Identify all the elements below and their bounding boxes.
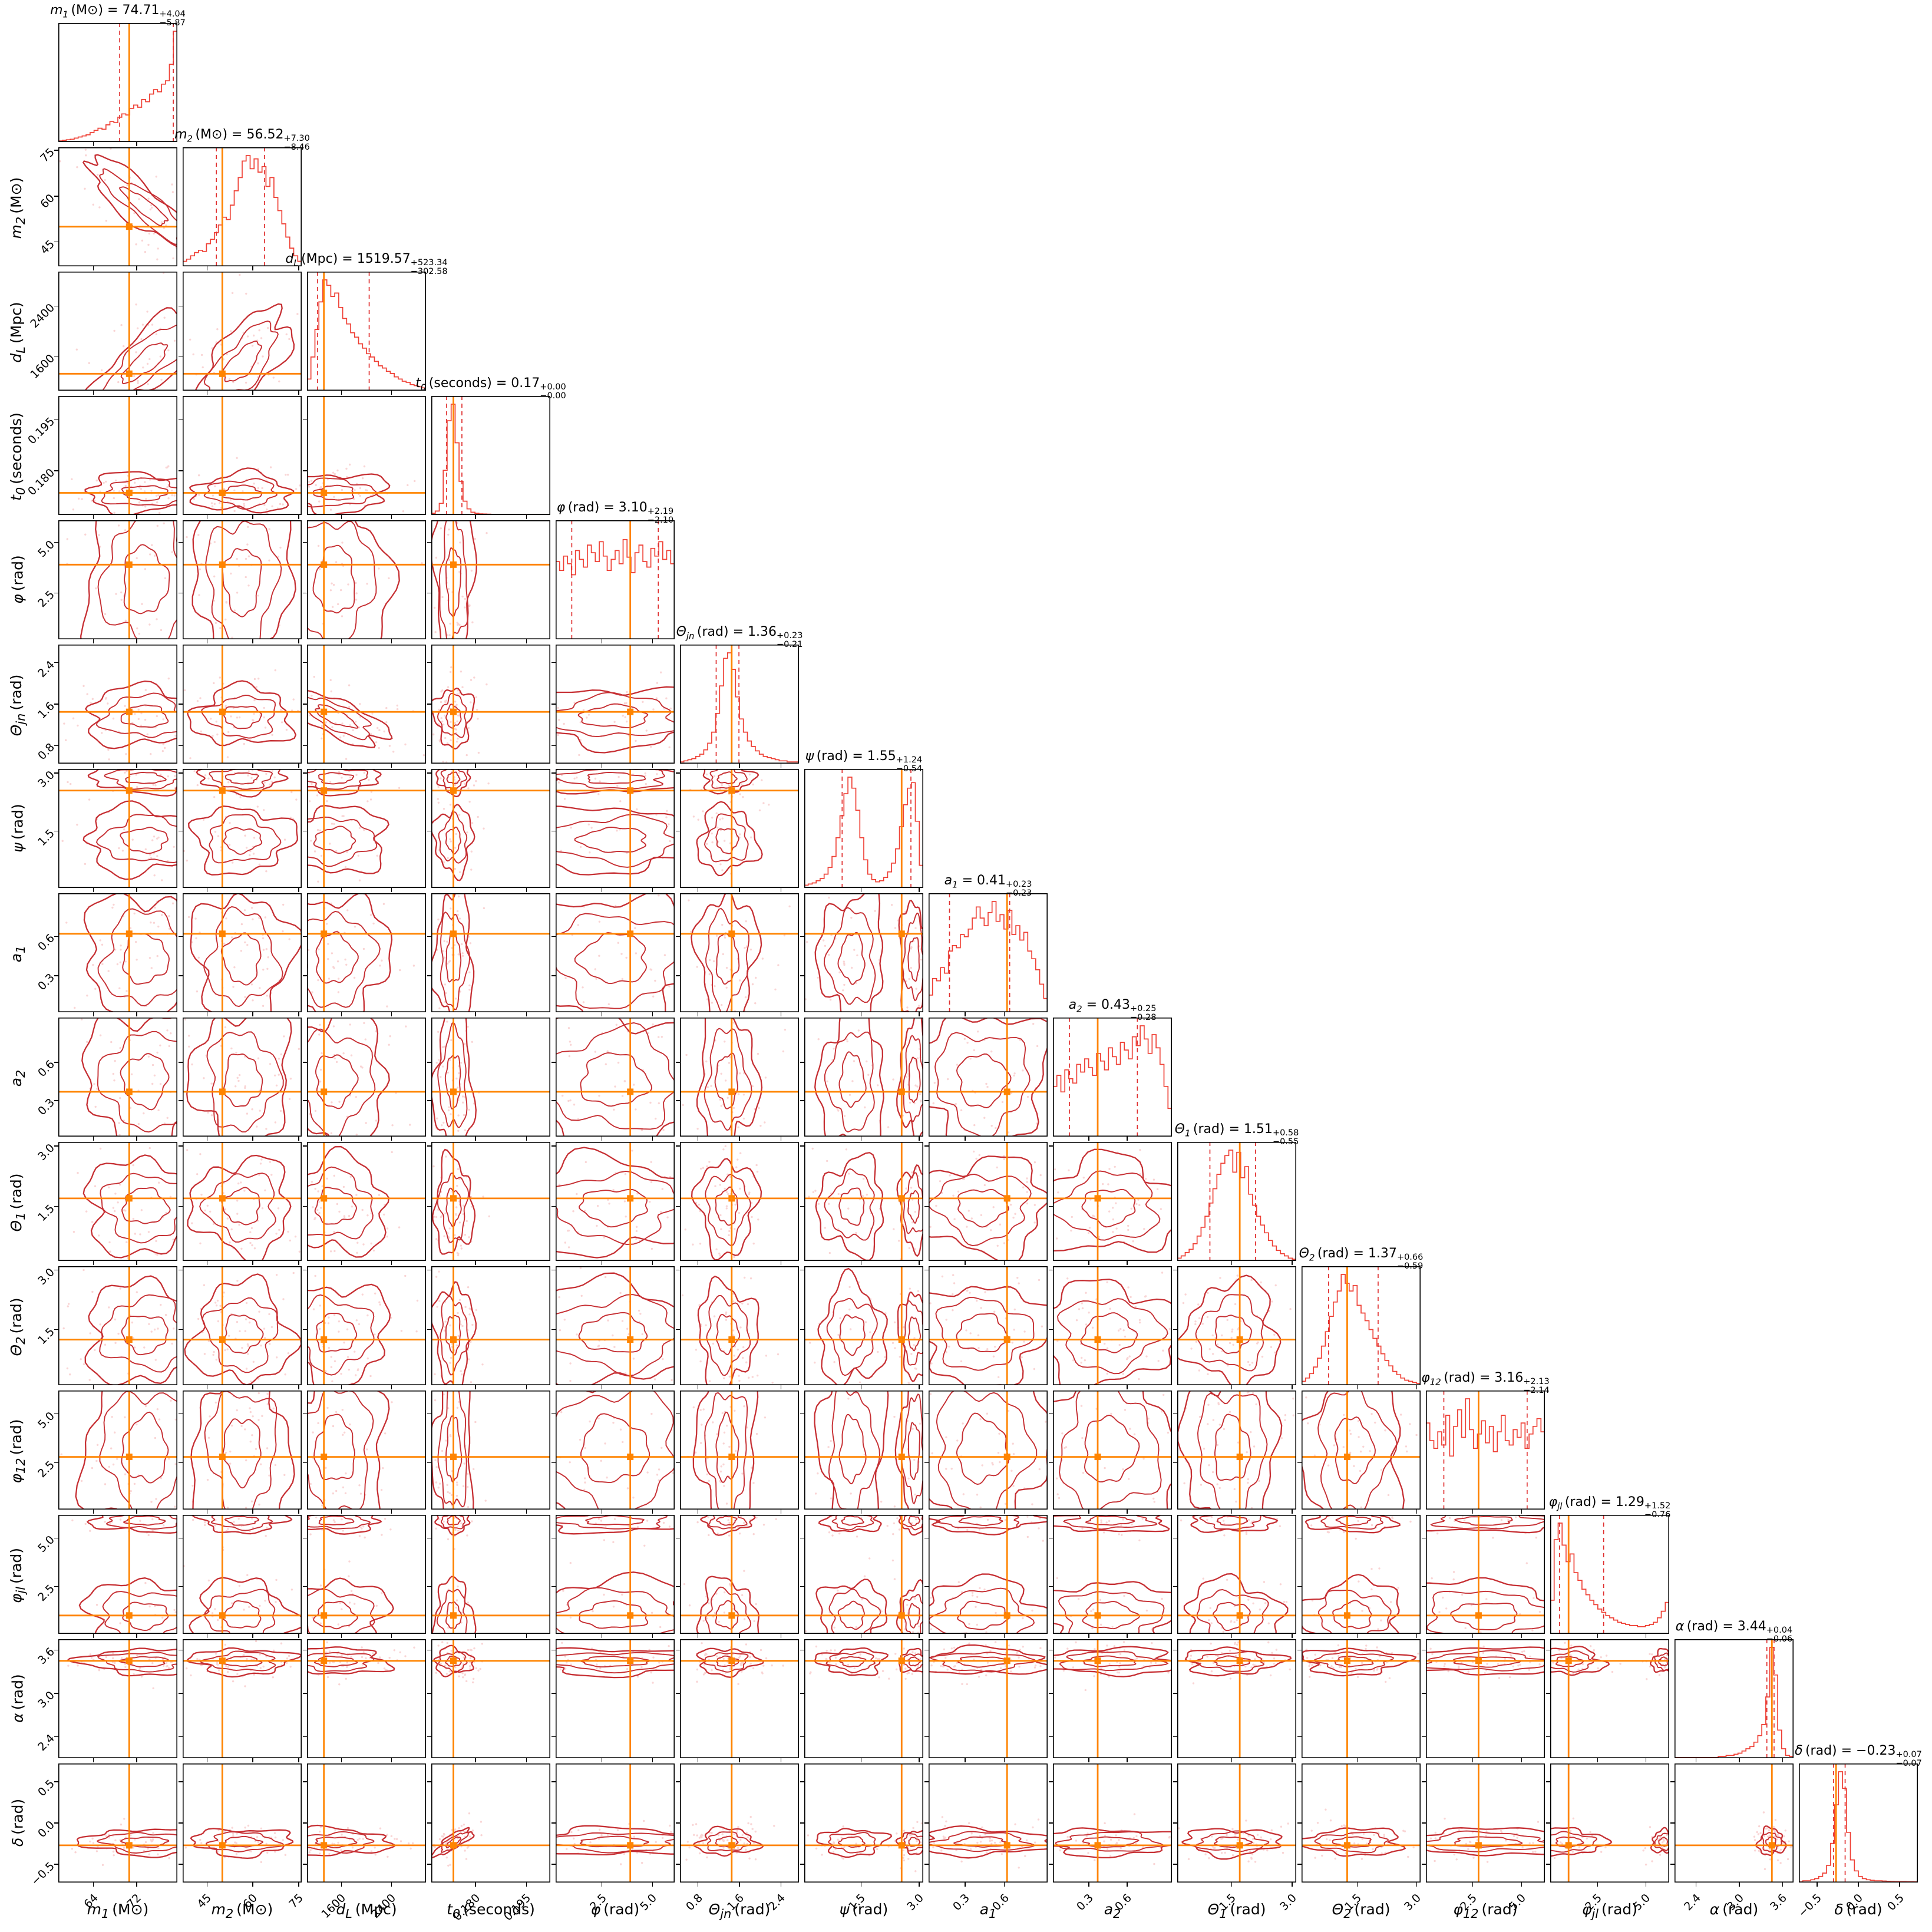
x-tick-mark <box>207 1137 208 1141</box>
y-tick-mark <box>551 772 556 774</box>
contour-panel-theta1-vs-t0 <box>431 1142 550 1261</box>
panel-background <box>804 1639 923 1758</box>
x-tick-mark <box>526 1510 527 1514</box>
contour-panel-theta_jn-vs-m1 <box>58 645 177 764</box>
y-tick-label: 2.5 <box>35 1458 57 1480</box>
y-tick-mark <box>54 831 58 832</box>
truth-marker <box>126 1454 133 1460</box>
y-tick-mark <box>676 1736 680 1738</box>
y-tick-mark <box>54 1736 58 1738</box>
y-tick-mark <box>427 745 431 747</box>
panel-background <box>680 1763 799 1883</box>
y-tick-mark <box>179 1822 183 1824</box>
hist-panel-dL <box>307 272 426 391</box>
panel-background <box>1053 1018 1172 1137</box>
truth-marker <box>219 1842 226 1848</box>
y-tick-mark <box>427 1650 431 1651</box>
panel-background <box>929 893 1048 1012</box>
panel-background <box>680 1018 799 1137</box>
y-tick-mark <box>54 1586 58 1587</box>
x-tick-mark <box>526 639 527 643</box>
panel-background <box>680 1142 799 1261</box>
contour-panel-phi_jl-vs-m1 <box>58 1515 177 1634</box>
truth-marker <box>1004 1336 1010 1343</box>
y-tick-mark <box>924 1206 929 1207</box>
y-tick-label: −0.5 <box>29 1860 57 1888</box>
y-tick-mark <box>427 1693 431 1694</box>
contour-panel-phi12-vs-psi <box>804 1391 923 1510</box>
contour-panel-phi12-vs-a2 <box>1053 1391 1172 1510</box>
contour-panel-delta-vs-phi12 <box>1426 1763 1545 1883</box>
y-tick-label: 75 <box>38 146 57 165</box>
x-tick-mark <box>298 1510 299 1514</box>
x-tick-mark <box>475 764 476 768</box>
x-tick-mark <box>207 1758 208 1762</box>
panel-background <box>1302 1266 1421 1385</box>
truth-marker <box>126 1842 133 1848</box>
y-axis-title-delta: δ (rad) <box>9 1735 27 1911</box>
x-tick-mark <box>1416 1758 1418 1762</box>
x-tick-mark <box>391 764 392 768</box>
y-tick-mark <box>303 1100 307 1101</box>
truth-marker <box>899 1336 905 1343</box>
x-tick-mark <box>526 888 527 892</box>
x-tick-mark <box>298 1261 299 1265</box>
truth-marker <box>728 1454 735 1460</box>
contour-panel-theta2-vs-a2 <box>1053 1266 1172 1385</box>
x-tick-mark <box>252 639 253 643</box>
y-tick-label: 2400 <box>28 302 57 331</box>
x-tick-mark <box>1292 1385 1293 1389</box>
x-tick-mark <box>919 1385 920 1389</box>
x-tick-mark <box>93 1634 94 1638</box>
y-tick-mark <box>1422 1650 1426 1651</box>
y-tick-label: 1.5 <box>35 827 57 848</box>
y-tick-mark <box>303 1864 307 1865</box>
x-tick-mark <box>207 888 208 892</box>
truth-marker <box>1237 1657 1243 1664</box>
y-tick-mark <box>1546 1781 1550 1782</box>
truth-marker <box>899 1454 905 1460</box>
contour-panel-theta_jn-vs-dL <box>307 645 426 764</box>
truth-marker <box>321 787 327 794</box>
y-tick-mark <box>924 1693 929 1694</box>
x-tick-mark <box>602 888 603 892</box>
y-tick-mark <box>1049 1693 1053 1694</box>
y-tick-mark <box>676 772 680 774</box>
x-tick-mark <box>652 1634 653 1638</box>
y-tick-mark <box>551 936 556 937</box>
y-tick-mark <box>1670 1781 1675 1782</box>
y-tick-mark <box>303 1462 307 1464</box>
x-tick-mark <box>526 1137 527 1141</box>
x-tick-mark <box>136 391 137 395</box>
truth-marker <box>321 1612 327 1619</box>
x-tick-mark <box>1127 1883 1128 1887</box>
x-tick-mark <box>475 1261 476 1265</box>
x-tick-mark <box>698 1137 699 1141</box>
y-tick-label: 5.0 <box>35 1534 57 1555</box>
x-tick-mark <box>698 1883 699 1887</box>
truth-marker <box>321 1195 327 1201</box>
x-tick-mark <box>1521 1758 1523 1762</box>
y-tick-mark <box>924 1538 929 1539</box>
y-tick-mark <box>427 1100 431 1101</box>
y-tick-mark <box>676 1538 680 1539</box>
truth-marker <box>728 930 735 937</box>
y-tick-mark <box>303 975 307 976</box>
panel-background <box>1426 1763 1545 1883</box>
y-tick-mark <box>54 470 58 471</box>
truth-marker <box>321 562 327 568</box>
truth-marker <box>219 1657 226 1664</box>
x-tick-mark <box>965 1883 966 1887</box>
truth-marker <box>219 1336 226 1343</box>
x-tick-mark <box>391 1883 392 1887</box>
contour-panel-theta_jn-vs-m2 <box>183 645 302 764</box>
x-tick-mark <box>1696 1883 1697 1887</box>
contour-panel-phi12-vs-a1 <box>929 1391 1048 1510</box>
x-tick-mark <box>652 1510 653 1514</box>
panel-background <box>58 147 177 266</box>
panel-background <box>929 1391 1048 1510</box>
y-tick-mark <box>179 1736 183 1738</box>
y-tick-mark <box>551 1100 556 1101</box>
contour-panel-a2-vs-m2 <box>183 1018 302 1137</box>
truth-marker <box>1237 1454 1243 1460</box>
panel-background <box>556 893 675 1012</box>
x-tick-mark <box>207 1883 208 1887</box>
y-tick-mark <box>303 1062 307 1063</box>
truth-marker <box>219 1454 226 1460</box>
truth-marker <box>219 787 226 794</box>
y-tick-mark <box>427 772 431 774</box>
contour-panel-theta1-vs-psi <box>804 1142 923 1261</box>
y-tick-mark <box>427 1270 431 1271</box>
y-tick-mark <box>179 704 183 705</box>
y-tick-mark <box>54 1864 58 1865</box>
x-tick-mark <box>739 1261 740 1265</box>
x-tick-mark <box>136 764 137 768</box>
y-tick-mark <box>303 1414 307 1415</box>
y-tick-mark <box>54 1270 58 1271</box>
y-tick-mark <box>1173 1329 1177 1330</box>
x-tick-mark <box>1004 1510 1005 1514</box>
x-tick-mark <box>1416 1634 1418 1638</box>
truth-marker <box>126 562 133 568</box>
y-tick-mark <box>54 196 58 197</box>
contour-panel-alpha-vs-theta_jn <box>680 1639 799 1758</box>
y-tick-mark <box>427 831 431 832</box>
y-tick-mark <box>1422 1693 1426 1694</box>
hist-panel-theta_jn <box>680 645 799 764</box>
x-tick-mark <box>1597 1883 1599 1887</box>
y-tick-mark <box>800 1462 804 1464</box>
y-tick-mark <box>1297 1693 1302 1694</box>
truth-marker <box>219 1088 226 1095</box>
truth-marker <box>1475 1842 1482 1848</box>
x-tick-mark <box>136 1137 137 1141</box>
y-tick-mark <box>551 831 556 832</box>
truth-marker <box>1344 1612 1350 1619</box>
x-tick-mark <box>93 1510 94 1514</box>
y-tick-mark <box>303 662 307 663</box>
title-uncertainty: +0.23−0.21 <box>777 632 802 649</box>
truth-marker <box>219 709 226 715</box>
panel-background <box>680 1266 799 1385</box>
x-tick-mark <box>698 888 699 892</box>
x-tick-mark <box>136 639 137 643</box>
y-tick-label: 2.4 <box>35 1732 57 1753</box>
y-tick-mark <box>1173 1781 1177 1782</box>
x-tick-mark <box>1292 1883 1293 1887</box>
y-tick-mark <box>1297 1462 1302 1464</box>
x-tick-mark <box>136 515 137 519</box>
x-tick-mark <box>207 1634 208 1638</box>
x-tick-mark <box>1646 1883 1647 1887</box>
x-tick-mark <box>698 1510 699 1514</box>
x-tick-mark <box>475 1883 476 1887</box>
x-tick-mark <box>298 1883 299 1887</box>
truth-marker <box>899 1612 905 1619</box>
y-tick-mark <box>179 1270 183 1271</box>
truth-marker <box>728 787 735 794</box>
y-tick-mark <box>1049 1538 1053 1539</box>
y-tick-mark <box>551 1736 556 1738</box>
panel-background <box>556 1018 675 1137</box>
contour-panel-delta-vs-theta2 <box>1302 1763 1421 1883</box>
y-tick-mark <box>179 1062 183 1063</box>
y-tick-mark <box>676 1650 680 1651</box>
x-tick-mark <box>698 1634 699 1638</box>
x-tick-mark <box>298 1137 299 1141</box>
x-tick-mark <box>136 1261 137 1265</box>
contour-panel-alpha-vs-dL <box>307 1639 426 1758</box>
hist-panel-theta2 <box>1302 1266 1421 1385</box>
hist-panel-delta <box>1799 1763 1918 1883</box>
y-tick-mark <box>54 1145 58 1147</box>
truth-marker <box>1344 1657 1350 1664</box>
truth-marker <box>126 709 133 715</box>
contour-panel-alpha-vs-phi12 <box>1426 1639 1545 1758</box>
y-tick-label: 0.5 <box>35 1777 57 1799</box>
y-tick-label: 0.0 <box>35 1818 57 1840</box>
y-tick-mark <box>1297 1736 1302 1738</box>
y-tick-mark <box>303 772 307 774</box>
y-tick-mark <box>427 1062 431 1063</box>
x-tick-mark <box>1521 1883 1523 1887</box>
x-tick-mark <box>298 515 299 519</box>
y-tick-mark <box>179 1650 183 1651</box>
contour-panel-theta2-vs-a1 <box>929 1266 1048 1385</box>
contour-panel-a2-vs-psi <box>804 1018 923 1137</box>
x-tick-mark <box>652 764 653 768</box>
contour-panel-phi12-vs-m2 <box>183 1391 302 1510</box>
hist-panel-psi <box>804 769 923 888</box>
x-tick-mark <box>739 1883 740 1887</box>
contour-panel-theta1-vs-theta_jn <box>680 1142 799 1261</box>
x-tick-mark <box>1416 1510 1418 1514</box>
x-tick-mark <box>207 639 208 643</box>
y-tick-label: 2.4 <box>35 658 57 680</box>
truth-marker <box>1566 1657 1572 1664</box>
y-tick-mark <box>427 1586 431 1587</box>
panel-background <box>307 1763 426 1883</box>
hist-panel-phi <box>556 520 675 639</box>
y-tick-mark <box>1049 1414 1053 1415</box>
y-tick-mark <box>427 1538 431 1539</box>
truth-marker <box>1004 1612 1010 1619</box>
y-tick-label: 3.0 <box>35 1266 57 1287</box>
y-tick-mark <box>303 1650 307 1651</box>
x-tick-mark <box>1597 1758 1599 1762</box>
y-tick-mark <box>179 1538 183 1539</box>
y-tick-mark <box>676 1329 680 1330</box>
contour-panel-phi12-vs-m1 <box>58 1391 177 1510</box>
x-tick-mark <box>781 1261 782 1265</box>
y-tick-mark <box>303 470 307 471</box>
x-tick-mark <box>965 1634 966 1638</box>
x-tick-mark <box>341 1883 342 1887</box>
x-tick-mark <box>739 1137 740 1141</box>
truth-marker <box>450 709 457 715</box>
y-tick-mark <box>800 1270 804 1271</box>
x-tick-mark <box>602 1261 603 1265</box>
x-tick-mark <box>652 1012 653 1016</box>
contour-panel-delta-vs-m1 <box>58 1763 177 1883</box>
truth-marker <box>1237 1612 1243 1619</box>
contour-panel-a1-vs-theta_jn <box>680 893 799 1012</box>
x-tick-mark <box>475 639 476 643</box>
x-tick-mark <box>861 1883 862 1887</box>
y-tick-mark <box>1297 1586 1302 1587</box>
y-tick-mark <box>676 1270 680 1271</box>
y-tick-mark <box>427 542 431 543</box>
truth-marker <box>899 1842 905 1848</box>
contour-panel-phi_jl-vs-phi <box>556 1515 675 1634</box>
y-tick-mark <box>303 1586 307 1587</box>
x-tick-mark <box>781 1137 782 1141</box>
y-tick-mark <box>303 1538 307 1539</box>
x-tick-mark <box>526 1758 527 1762</box>
y-tick-mark <box>1422 1586 1426 1587</box>
x-tick-mark <box>298 1634 299 1638</box>
y-tick-mark <box>1049 1206 1053 1207</box>
x-tick-mark <box>739 1510 740 1514</box>
title-uncertainty: +0.23−0.23 <box>1006 880 1032 898</box>
x-tick-mark <box>391 1137 392 1141</box>
y-tick-mark <box>551 662 556 663</box>
y-tick-mark <box>1422 1538 1426 1539</box>
y-tick-mark <box>54 542 58 543</box>
title-uncertainty: +2.13−2.14 <box>1523 1378 1549 1395</box>
truth-marker <box>728 1657 735 1664</box>
contour-panel-alpha-vs-a2 <box>1053 1639 1172 1758</box>
x-tick-mark <box>252 1634 253 1638</box>
y-tick-mark <box>1173 1462 1177 1464</box>
x-tick-mark <box>526 1634 527 1638</box>
y-tick-mark <box>924 1270 929 1271</box>
contour-panel-theta2-vs-t0 <box>431 1266 550 1385</box>
x-tick-mark <box>781 1634 782 1638</box>
contour-panel-theta1-vs-a2 <box>1053 1142 1172 1261</box>
x-tick-mark <box>298 764 299 768</box>
panel-background <box>431 769 550 888</box>
x-tick-mark <box>526 1261 527 1265</box>
contour-panel-psi-vs-m1 <box>58 769 177 888</box>
y-tick-mark <box>1297 1822 1302 1824</box>
y-tick-mark <box>551 975 556 976</box>
y-tick-mark <box>676 1693 680 1694</box>
y-tick-mark <box>1670 1822 1675 1824</box>
panel-background <box>58 1266 177 1385</box>
truth-marker <box>321 1088 327 1095</box>
x-tick-mark <box>919 1883 920 1887</box>
x-tick-mark <box>93 1137 94 1141</box>
x-tick-mark <box>919 1137 920 1141</box>
x-tick-mark <box>698 1385 699 1389</box>
contour-panel-a2-vs-t0 <box>431 1018 550 1137</box>
y-tick-mark <box>1173 1864 1177 1865</box>
y-tick-mark <box>1297 1414 1302 1415</box>
contour-panel-theta1-vs-dL <box>307 1142 426 1261</box>
y-tick-mark <box>427 975 431 976</box>
y-tick-mark <box>54 356 58 357</box>
x-tick-mark <box>252 764 253 768</box>
contour-panel-theta2-vs-theta_jn <box>680 1266 799 1385</box>
x-tick-mark <box>207 1261 208 1265</box>
panel-background <box>307 520 426 639</box>
panel-background <box>183 1763 302 1883</box>
truth-marker <box>627 1454 633 1460</box>
y-tick-mark <box>427 1736 431 1738</box>
truth-marker <box>450 930 457 937</box>
panel-background <box>1177 1266 1296 1385</box>
truth-marker <box>219 1195 226 1201</box>
y-tick-label: 2.5 <box>35 1582 57 1604</box>
contour-panel-phi_jl-vs-a1 <box>929 1515 1048 1634</box>
y-tick-label: 1.5 <box>35 1202 57 1224</box>
y-tick-mark <box>179 745 183 747</box>
truth-marker <box>627 1657 633 1664</box>
x-tick-mark <box>391 1634 392 1638</box>
contour-panel-a2-vs-dL <box>307 1018 426 1137</box>
y-tick-mark <box>1546 1693 1550 1694</box>
y-tick-mark <box>1422 1864 1426 1865</box>
y-tick-label: 0.3 <box>35 971 57 993</box>
y-tick-mark <box>54 936 58 937</box>
x-tick-mark <box>1231 1758 1233 1762</box>
truth-marker <box>627 1195 633 1201</box>
y-tick-mark <box>179 1100 183 1101</box>
panel-background <box>431 1763 550 1883</box>
y-tick-label: 45 <box>38 237 57 257</box>
x-tick-mark <box>298 1385 299 1389</box>
hist-panel-a2 <box>1053 1018 1172 1137</box>
y-tick-mark <box>551 1329 556 1330</box>
panel-background <box>183 645 302 764</box>
y-tick-mark <box>427 1145 431 1147</box>
panel-background <box>680 893 799 1012</box>
contour-panel-a2-vs-phi <box>556 1018 675 1137</box>
y-tick-mark <box>303 1822 307 1824</box>
x-tick-mark <box>1004 1385 1005 1389</box>
truth-marker <box>450 787 457 794</box>
y-tick-mark <box>676 1864 680 1865</box>
y-tick-mark <box>924 1145 929 1147</box>
y-tick-mark <box>179 1329 183 1330</box>
x-tick-mark <box>1899 1883 1900 1887</box>
